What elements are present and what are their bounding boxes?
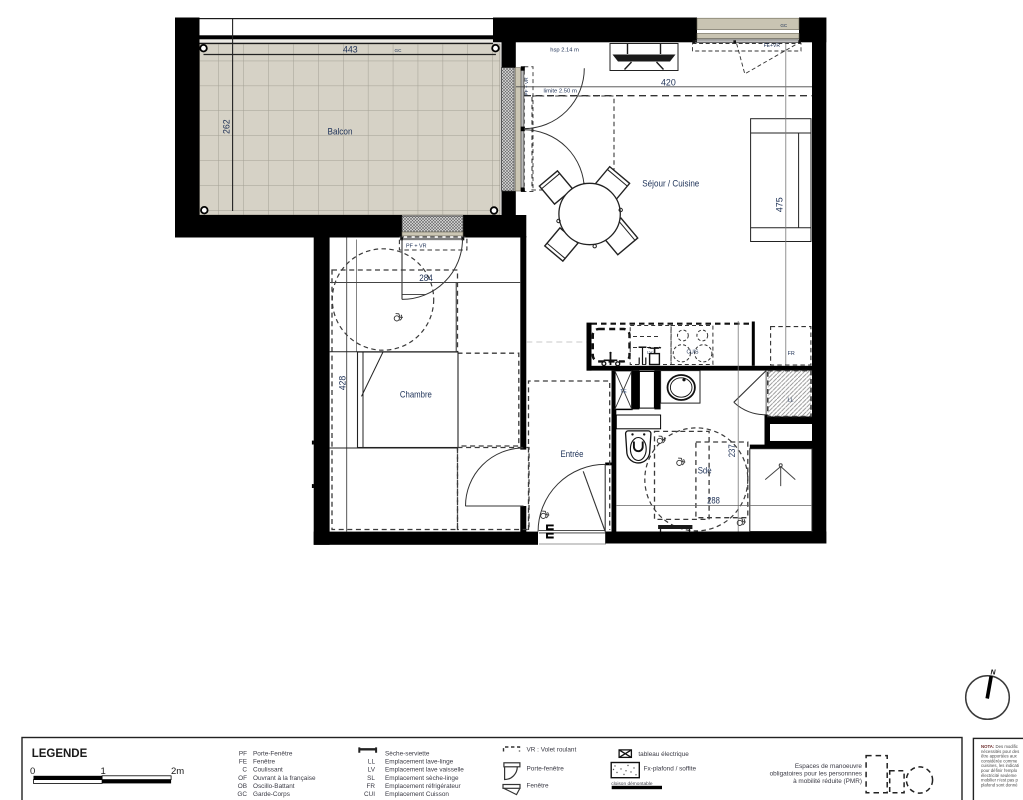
- svg-text:284: 284: [419, 273, 433, 284]
- svg-text:443: 443: [343, 45, 358, 56]
- svg-text:plafond sont donné: plafond sont donné: [981, 782, 1018, 787]
- svg-text:OB: OB: [238, 783, 247, 790]
- svg-text:VR : Volet roulant: VR : Volet roulant: [527, 747, 577, 754]
- svg-text:Fenêtre: Fenêtre: [527, 783, 549, 790]
- svg-text:Espaces de manoeuvre: Espaces de manoeuvre: [795, 763, 863, 770]
- svg-text:LV: LV: [368, 767, 376, 774]
- svg-text:Porte-fenêtre: Porte-fenêtre: [527, 766, 565, 773]
- svg-text:288: 288: [707, 496, 720, 507]
- svg-text:420: 420: [661, 78, 676, 89]
- svg-text:FE: FE: [239, 759, 247, 766]
- svg-text:Coulissant: Coulissant: [253, 767, 283, 774]
- svg-text:Porte-Fenêtre: Porte-Fenêtre: [253, 751, 293, 758]
- svg-text:CUI: CUI: [364, 791, 375, 798]
- svg-text:GC: GC: [237, 791, 247, 798]
- svg-text:GC: GC: [395, 48, 403, 53]
- svg-text:SL: SL: [367, 775, 375, 782]
- svg-text:TE: TE: [620, 389, 627, 395]
- svg-text:obligatoires pour les personnn: obligatoires pour les personnnes: [770, 771, 862, 778]
- svg-text:Emplacement lave vaisselle: Emplacement lave vaisselle: [385, 767, 464, 774]
- svg-text:Entrée: Entrée: [561, 449, 584, 460]
- svg-text:PF: PF: [239, 751, 247, 758]
- svg-text:limite 2.50 m: limite 2.50 m: [544, 89, 577, 95]
- svg-text:Sèche-serviette: Sèche-serviette: [385, 751, 430, 758]
- svg-text:Fenêtre: Fenêtre: [253, 759, 275, 766]
- svg-text:Séjour / Cuisine: Séjour / Cuisine: [642, 179, 699, 190]
- svg-text:à mobilité réduite (PMR): à mobilité réduite (PMR): [793, 778, 862, 785]
- svg-text:Emplacement réfrigérateur: Emplacement réfrigérateur: [385, 783, 462, 790]
- svg-text:Oscillo-Battant: Oscillo-Battant: [253, 783, 295, 790]
- svg-text:1: 1: [101, 766, 106, 777]
- svg-text:Fx-plafond / soffite: Fx-plafond / soffite: [644, 766, 697, 773]
- svg-text:FR: FR: [788, 351, 795, 357]
- svg-text:Garde-Corps: Garde-Corps: [253, 791, 290, 798]
- svg-text:GC: GC: [780, 23, 788, 28]
- svg-text:LEGENDE: LEGENDE: [32, 748, 88, 760]
- svg-text:OF: OF: [238, 775, 247, 782]
- svg-text:237: 237: [727, 444, 738, 457]
- svg-text:FR: FR: [366, 783, 375, 790]
- svg-text:Balcon: Balcon: [328, 126, 353, 137]
- svg-text:Ouvrant à la française: Ouvrant à la française: [253, 775, 316, 782]
- svg-text:Emplacement sèche-linge: Emplacement sèche-linge: [385, 775, 459, 782]
- svg-text:PF + VR: PF + VR: [406, 244, 427, 250]
- svg-text:hsp 2.14 m: hsp 2.14 m: [550, 48, 579, 54]
- svg-text:Emplacement Cuisson: Emplacement Cuisson: [385, 791, 449, 798]
- svg-text:LL: LL: [788, 398, 794, 404]
- svg-text:Chambre: Chambre: [400, 390, 432, 401]
- svg-text:tableau électrique: tableau électrique: [638, 751, 689, 758]
- svg-text:262: 262: [222, 119, 233, 134]
- svg-text:LL: LL: [368, 759, 376, 766]
- svg-text:0: 0: [30, 766, 35, 777]
- svg-text:Emplacement lave-linge: Emplacement lave-linge: [385, 759, 454, 766]
- svg-text:FE+VR: FE+VR: [764, 43, 780, 49]
- svg-text:475: 475: [774, 197, 785, 212]
- svg-text:C: C: [242, 767, 247, 774]
- svg-text:PF + VR: PF + VR: [524, 77, 530, 96]
- svg-text:2m: 2m: [171, 766, 184, 777]
- svg-text:428: 428: [338, 376, 349, 391]
- svg-text:CUIS: CUIS: [687, 349, 700, 355]
